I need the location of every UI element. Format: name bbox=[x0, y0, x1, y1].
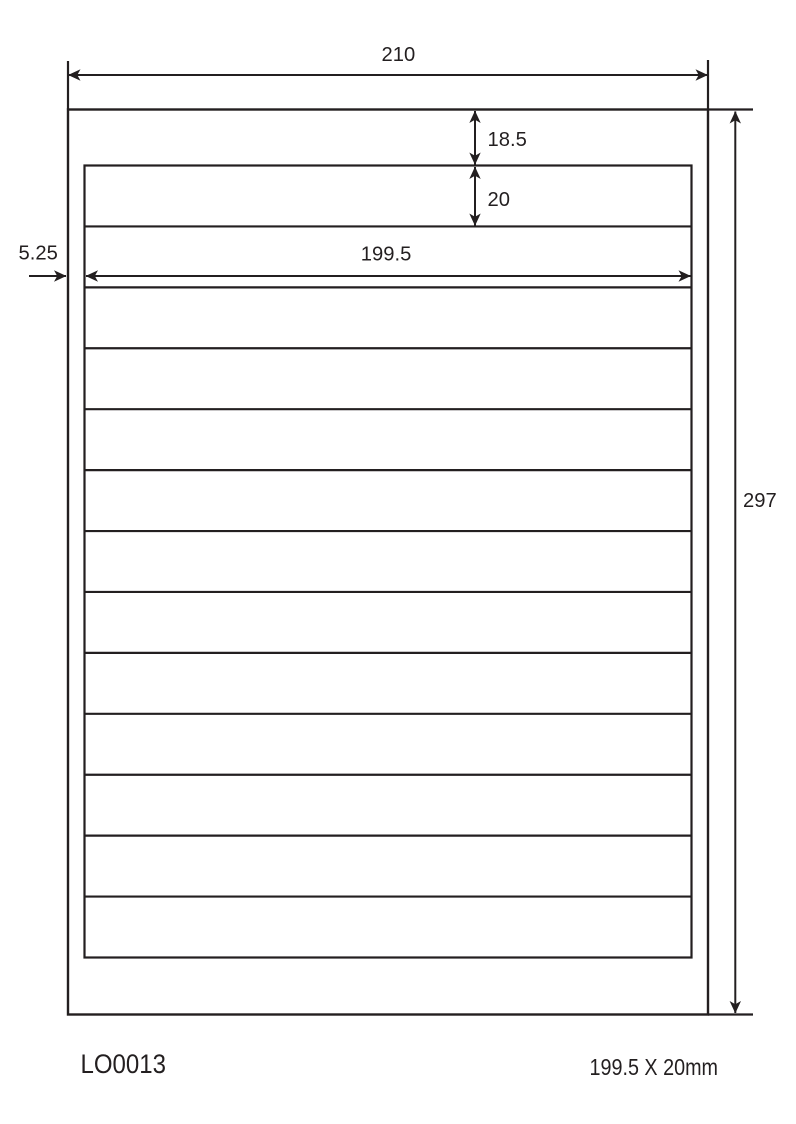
svg-text:210: 210 bbox=[382, 44, 416, 66]
svg-text:LO0013: LO0013 bbox=[81, 1049, 167, 1079]
svg-text:5.25: 5.25 bbox=[19, 243, 58, 265]
svg-text:199.5: 199.5 bbox=[361, 244, 412, 266]
svg-text:297: 297 bbox=[743, 490, 777, 512]
svg-text:20: 20 bbox=[488, 189, 510, 211]
svg-text:18.5: 18.5 bbox=[488, 129, 527, 151]
svg-text:199.5 X 20mm: 199.5 X 20mm bbox=[590, 1054, 719, 1080]
